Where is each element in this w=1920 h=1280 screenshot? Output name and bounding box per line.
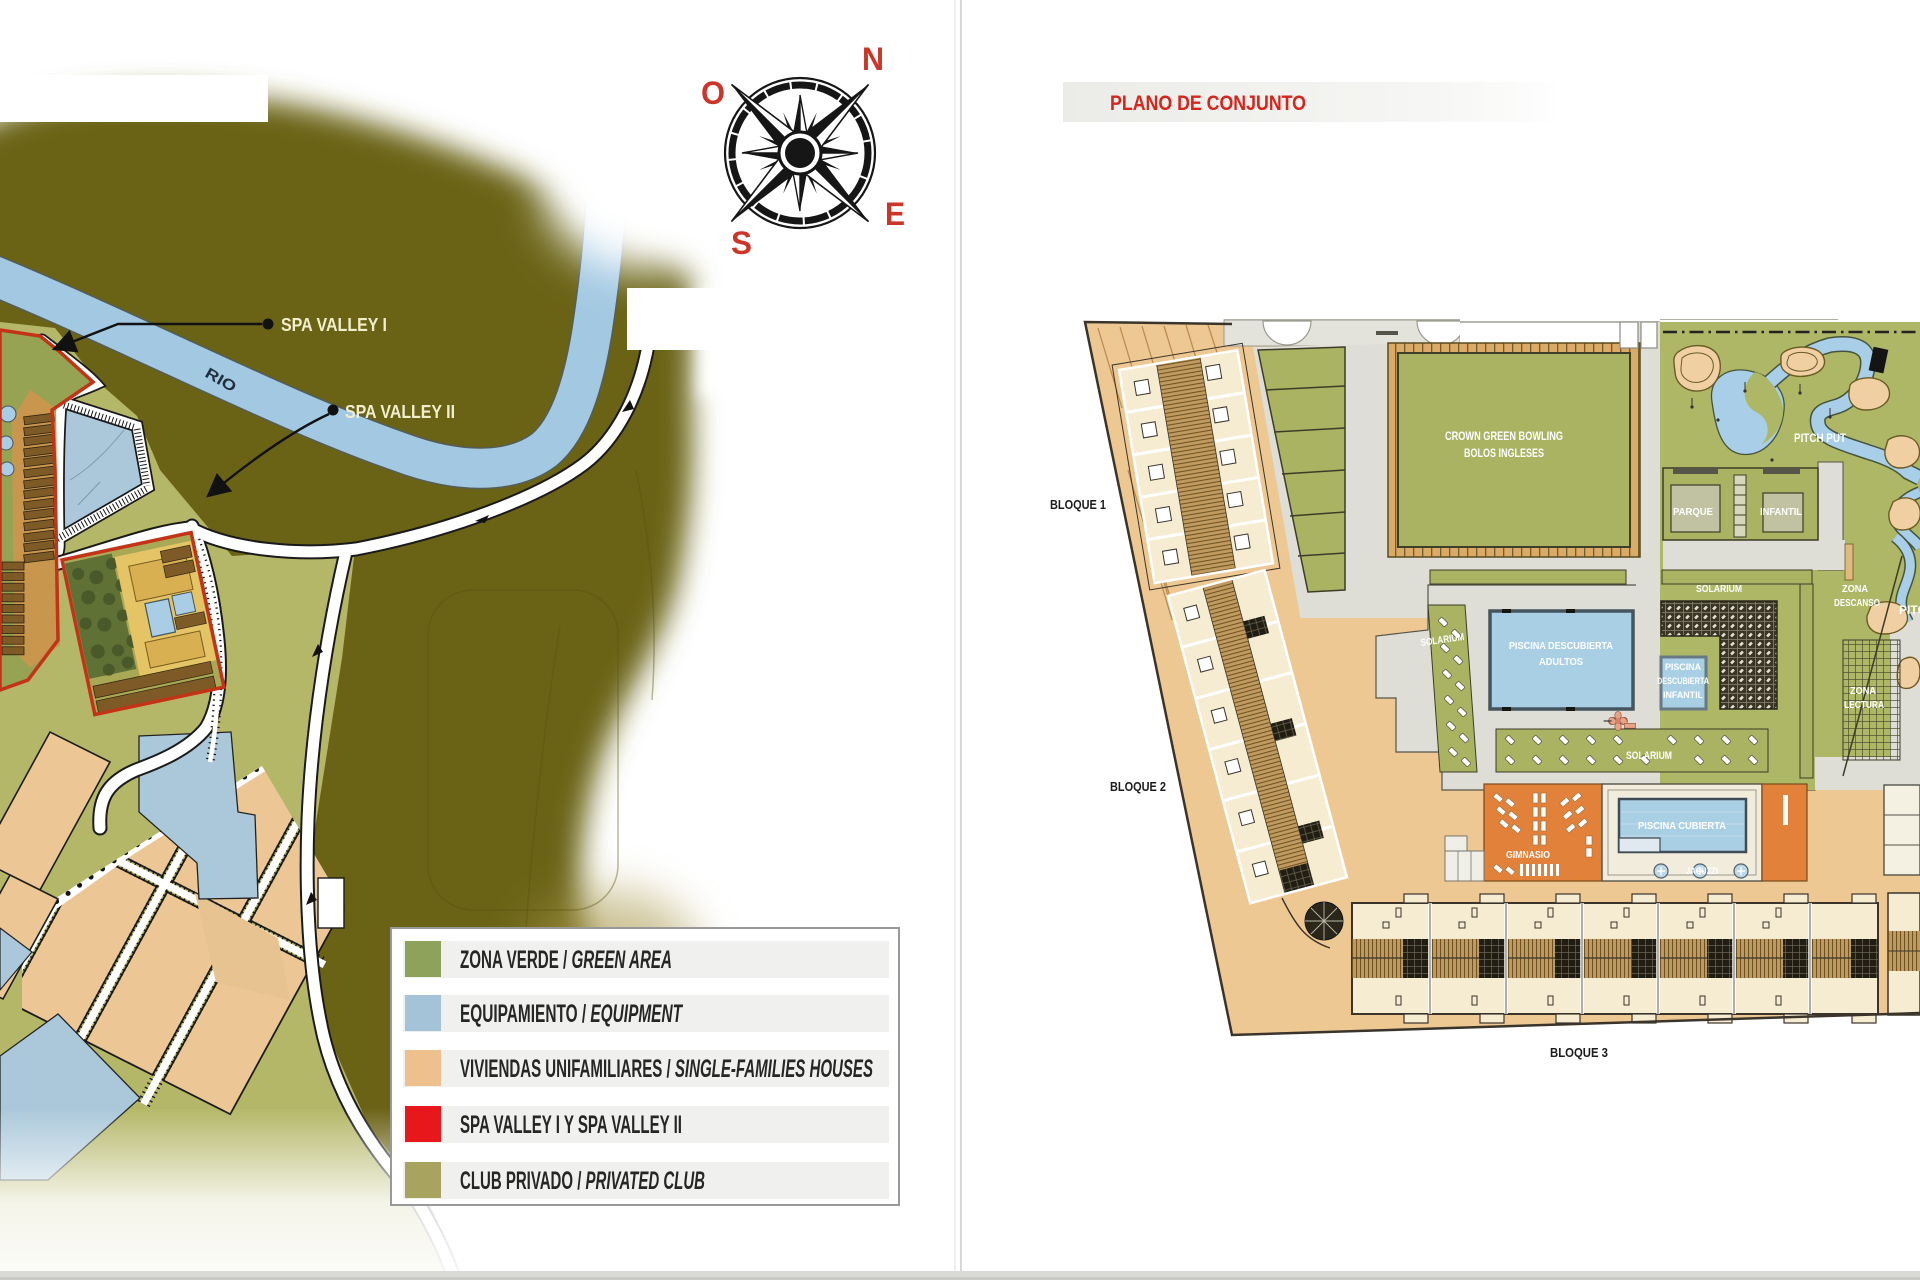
svg-text:PISCINA DESCUBIERTA: PISCINA DESCUBIERTA bbox=[1509, 640, 1613, 652]
svg-text:E: E bbox=[885, 196, 905, 232]
svg-text:ZONA VERDE / GREEN AREA: ZONA VERDE / GREEN AREA bbox=[460, 946, 672, 974]
svg-text:O: O bbox=[701, 75, 725, 111]
svg-text:DESCANSO: DESCANSO bbox=[1834, 598, 1880, 609]
svg-text:N: N bbox=[862, 41, 884, 77]
svg-text:SPA VALLEY I: SPA VALLEY I bbox=[281, 314, 387, 335]
svg-text:SOLARIUM: SOLARIUM bbox=[1626, 750, 1672, 762]
svg-text:S: S bbox=[731, 225, 752, 261]
svg-text:BLOQUE 2: BLOQUE 2 bbox=[1110, 780, 1166, 794]
svg-text:LECTURA: LECTURA bbox=[1844, 700, 1884, 711]
svg-text:BLOQUE 1: BLOQUE 1 bbox=[1050, 498, 1106, 512]
svg-text:PISCINA: PISCINA bbox=[1665, 662, 1701, 673]
svg-text:INFANTIL: INFANTIL bbox=[1760, 506, 1803, 518]
svg-text:PITCH PUT: PITCH PUT bbox=[1794, 431, 1847, 445]
svg-text:CLUB PRIVADO / PRIVATED CLUB: CLUB PRIVADO / PRIVATED CLUB bbox=[460, 1167, 705, 1195]
svg-text:ADULTOS: ADULTOS bbox=[1539, 656, 1583, 668]
svg-text:JACUZZI: JACUZZI bbox=[1686, 866, 1718, 876]
svg-text:ZONA: ZONA bbox=[1842, 584, 1868, 595]
svg-text:GIMNASIO: GIMNASIO bbox=[1506, 849, 1550, 861]
svg-text:VIVIENDAS UNIFAMILIARES / SING: VIVIENDAS UNIFAMILIARES / SINGLE-FAMILIE… bbox=[460, 1055, 873, 1083]
svg-text:BOLOS INGLESES: BOLOS INGLESES bbox=[1464, 448, 1544, 460]
svg-text:EQUIPAMIENTO / EQUIPMENT: EQUIPAMIENTO / EQUIPMENT bbox=[460, 1000, 684, 1028]
svg-text:PARQUE: PARQUE bbox=[1673, 506, 1713, 518]
svg-text:ZONA: ZONA bbox=[1850, 686, 1876, 697]
svg-text:PISCINA CUBIERTA: PISCINA CUBIERTA bbox=[1638, 820, 1726, 832]
svg-text:SOLARIUM: SOLARIUM bbox=[1696, 583, 1742, 595]
svg-text:PITCH PU: PITCH PU bbox=[1899, 603, 1920, 617]
svg-text:SPA VALLEY I Y SPA VALLEY II: SPA VALLEY I Y SPA VALLEY II bbox=[460, 1111, 682, 1139]
svg-text:INFANTIL: INFANTIL bbox=[1663, 690, 1703, 701]
svg-text:CROWN GREEN BOWLING: CROWN GREEN BOWLING bbox=[1445, 431, 1563, 443]
svg-text:BLOQUE 3: BLOQUE 3 bbox=[1550, 1045, 1608, 1060]
svg-text:SPA VALLEY II: SPA VALLEY II bbox=[345, 401, 455, 422]
svg-text:PLANO DE CONJUNTO: PLANO DE CONJUNTO bbox=[1110, 92, 1306, 115]
svg-text:DESCUBIERTA: DESCUBIERTA bbox=[1657, 676, 1709, 687]
